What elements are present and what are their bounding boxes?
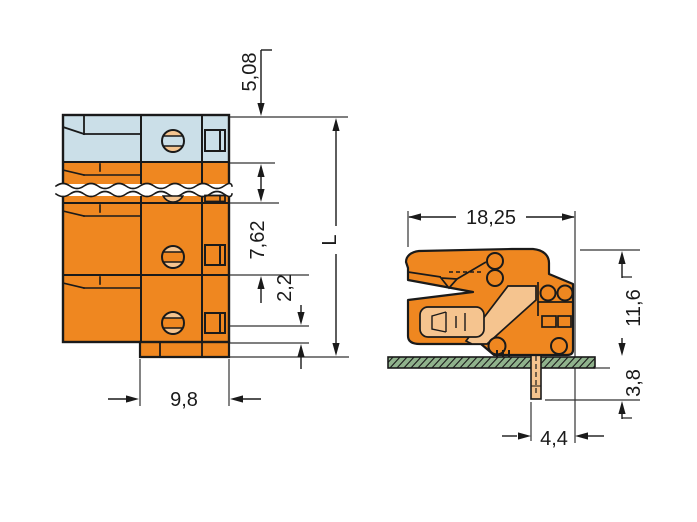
mounting-foot (140, 342, 229, 357)
dim-label-2-2: 2,2 (274, 274, 296, 302)
dim-label-18-25: 18,25 (466, 207, 516, 229)
arrowhead (257, 103, 264, 116)
dimension-5-08: 5,08 (239, 50, 272, 116)
dimension-2-2: 2,2 (274, 274, 305, 369)
dim-label-3-8: 3,8 (623, 369, 645, 397)
drawing-svg: 5,08 7,62 2,2 L (0, 0, 697, 522)
dim-label-4-4: 4,4 (540, 428, 568, 450)
dimension-7-62: 7,62 (247, 164, 269, 303)
dimension-18-25: 18,25 (408, 207, 575, 247)
wire-entry-funnel (420, 307, 484, 337)
pcb (382, 356, 604, 369)
datasheet-drawing: 5,08 7,62 2,2 L (0, 0, 697, 522)
dim-label-5-08: 5,08 (239, 53, 261, 92)
dim-label-7-62: 7,62 (247, 221, 269, 260)
dim-label-9-8: 9,8 (170, 389, 198, 411)
dimension-4-4: 4,4 (502, 402, 604, 450)
dimension-9-8: 9,8 (108, 389, 261, 411)
dimension-11-6: 11,6 (580, 250, 645, 356)
side-view (382, 211, 604, 443)
dim-label-11-6: 11,6 (623, 289, 645, 326)
dimension-3-8: 3,8 (545, 368, 645, 419)
wavy-break (54, 184, 235, 197)
dimension-L: L (319, 118, 341, 356)
front-view (54, 115, 235, 357)
dim-label-L: L (319, 234, 341, 245)
